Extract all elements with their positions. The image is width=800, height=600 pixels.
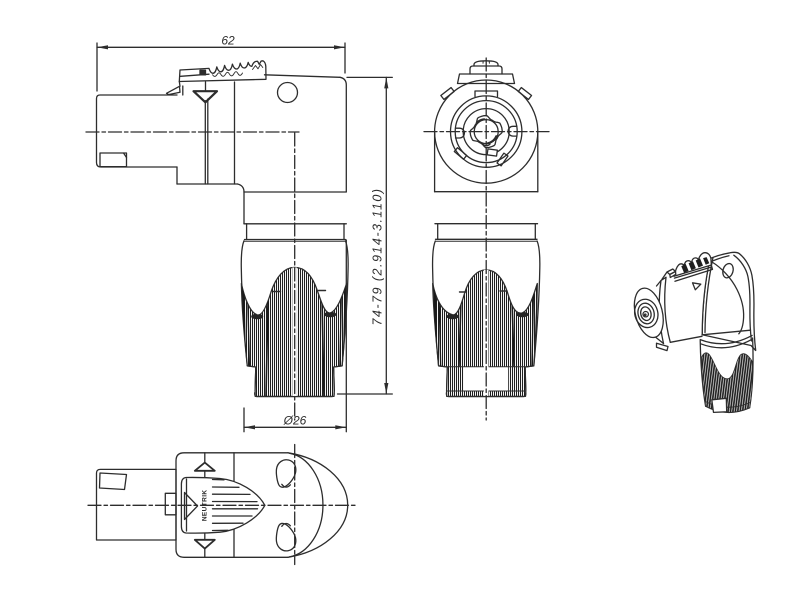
svg-text:Ø26: Ø26 (283, 414, 307, 428)
svg-text:62: 62 (221, 34, 235, 48)
svg-text:74-79 (2.914-3.110): 74-79 (2.914-3.110) (371, 187, 385, 325)
